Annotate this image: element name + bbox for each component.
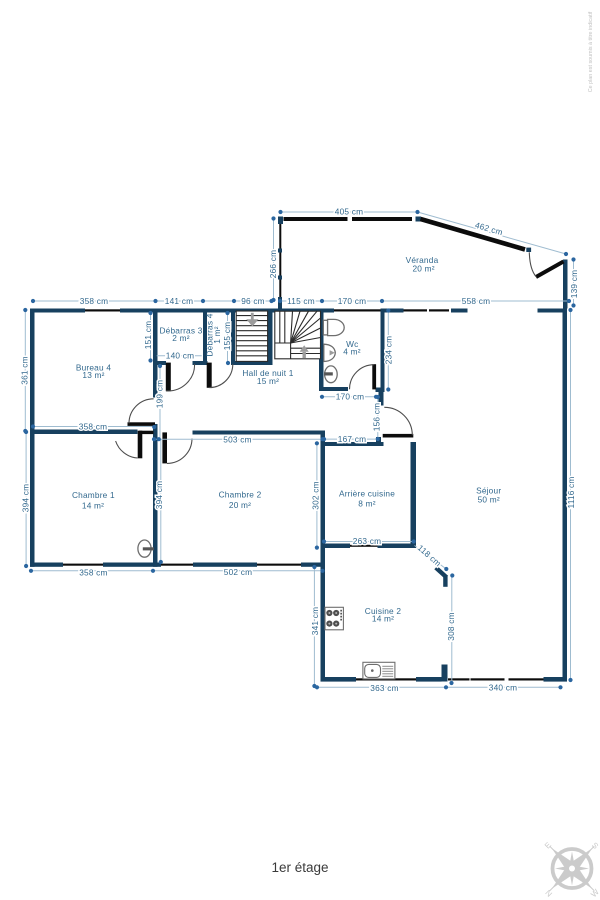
svg-text:Ce plan est soumis à titre ind: Ce plan est soumis à titre indicatif (588, 11, 594, 92)
svg-text:E: E (543, 840, 553, 850)
svg-text:266 cm: 266 cm (268, 250, 278, 278)
svg-text:358 cm: 358 cm (79, 421, 107, 431)
svg-text:8 m²: 8 m² (358, 499, 375, 509)
svg-text:363 cm: 363 cm (370, 683, 398, 693)
svg-text:263 cm: 263 cm (353, 536, 381, 546)
svg-text:340 cm: 340 cm (489, 683, 517, 693)
svg-text:341 cm: 341 cm (310, 607, 320, 635)
svg-text:1116 cm: 1116 cm (566, 477, 576, 509)
svg-text:155 cm: 155 cm (222, 322, 232, 350)
svg-text:118 cm: 118 cm (416, 543, 444, 569)
svg-text:14 m²: 14 m² (82, 501, 104, 511)
svg-text:4 m²: 4 m² (343, 346, 360, 356)
svg-text:503 cm: 503 cm (223, 434, 251, 444)
svg-text:Chambre 1: Chambre 1 (72, 490, 115, 500)
svg-text:358 cm: 358 cm (79, 568, 107, 578)
svg-text:361 cm: 361 cm (20, 356, 30, 384)
svg-text:20 m²: 20 m² (229, 500, 251, 510)
svg-text:308 cm: 308 cm (446, 612, 456, 640)
svg-text:141 cm: 141 cm (165, 296, 193, 306)
svg-text:Chambre 2: Chambre 2 (219, 490, 262, 500)
svg-text:96 cm: 96 cm (241, 296, 265, 306)
svg-text:15 m²: 15 m² (257, 376, 279, 386)
svg-text:302 cm: 302 cm (310, 481, 320, 509)
svg-text:394 cm: 394 cm (21, 484, 31, 512)
svg-text:W: W (589, 887, 600, 899)
svg-text:170 cm: 170 cm (336, 392, 364, 402)
svg-text:1er étage: 1er étage (271, 860, 328, 875)
svg-text:167 cm: 167 cm (338, 434, 366, 444)
svg-text:140 cm: 140 cm (166, 350, 194, 360)
svg-text:50 m²: 50 m² (478, 495, 500, 505)
svg-text:170 cm: 170 cm (338, 296, 366, 306)
svg-text:558 cm: 558 cm (462, 296, 490, 306)
svg-text:2 m²: 2 m² (172, 333, 189, 343)
svg-text:234 cm: 234 cm (383, 336, 393, 364)
svg-text:156 cm: 156 cm (371, 403, 381, 431)
svg-text:139 cm: 139 cm (569, 270, 579, 298)
svg-text:20 m²: 20 m² (412, 263, 434, 273)
svg-text:N: N (543, 888, 554, 899)
svg-text:502 cm: 502 cm (224, 567, 252, 577)
svg-text:115 cm: 115 cm (287, 296, 315, 306)
svg-text:405 cm: 405 cm (335, 207, 363, 217)
svg-text:1 m²: 1 m² (212, 326, 222, 343)
svg-text:13 m²: 13 m² (82, 370, 104, 380)
svg-text:394 cm: 394 cm (154, 481, 164, 509)
svg-text:151 cm: 151 cm (143, 321, 153, 349)
svg-text:199 cm: 199 cm (155, 380, 165, 408)
svg-text:14 m²: 14 m² (372, 614, 394, 624)
svg-text:Arrière cuisine: Arrière cuisine (339, 489, 395, 499)
svg-text:358 cm: 358 cm (80, 296, 108, 306)
